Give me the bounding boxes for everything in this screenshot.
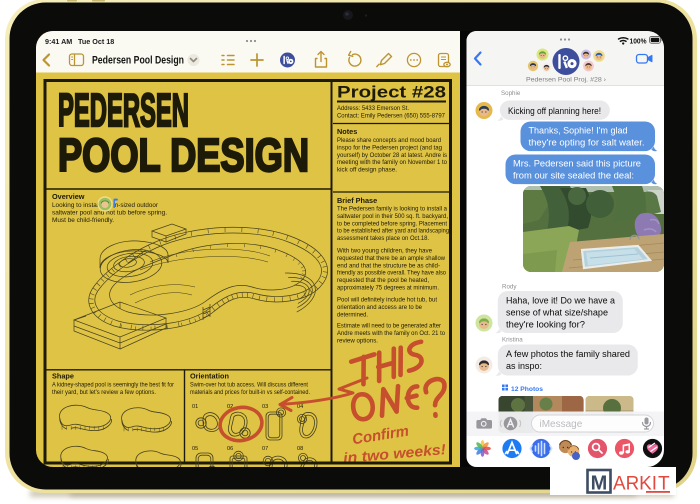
svg-text:their yard, but let's review a: their yard, but let's review a few optio… (52, 389, 156, 396)
svg-text:to be established after yard a: to be established after yard and landsca… (337, 228, 449, 235)
svg-text:requested that the pool be hea: requested that the pool be heated, (337, 277, 429, 284)
svg-text:08: 08 (297, 446, 303, 452)
svg-text:kick off design phase.: kick off design phase. (337, 167, 397, 174)
svg-text:9:41 AM: 9:41 AM (45, 37, 72, 46)
svg-text:inspo for the Pedersen project: inspo for the Pedersen project (and tag (337, 144, 442, 151)
svg-text:approximately 75 degrees at mi: approximately 75 degrees at minimum. (337, 285, 439, 292)
svg-text:Tue Oct 18: Tue Oct 18 (78, 37, 114, 46)
svg-text:Please share concepts and mood: Please share concepts and mood board (337, 137, 441, 144)
svg-text:Kristina: Kristina (502, 337, 523, 344)
svg-text:Notes: Notes (337, 127, 357, 136)
svg-text:M: M (591, 473, 608, 495)
svg-text:100%: 100% (630, 37, 647, 46)
svg-text:Haha, love it! Do we have a: Haha, love it! Do we have a (506, 296, 616, 307)
svg-text:Contact: Emily Pedersen (650): Contact: Emily Pedersen (650) 555-8797 (337, 113, 446, 120)
svg-text:they're opting for salt water.: they're opting for salt water. (529, 138, 645, 149)
svg-text:Project #28: Project #28 (337, 84, 446, 102)
svg-text:from our site sealed the deal:: from our site sealed the deal: (513, 171, 634, 182)
svg-text:Estimate will need to be gener: Estimate will need to be generated after (337, 323, 441, 330)
svg-text:Brief Phase: Brief Phase (337, 196, 377, 205)
svg-text:friendly as possible overall.: friendly as possible overall. They have … (337, 270, 447, 277)
svg-text:12 Photos: 12 Photos (511, 386, 543, 393)
svg-text:saltwater pool and hot tub bef: saltwater pool and hot tub before spring… (52, 210, 167, 217)
svg-text:A kidney-shaped pool is seemin: A kidney-shaped pool is seemingly the be… (52, 382, 174, 389)
svg-text:end and that the structure be: end and that the structure be as child- (337, 262, 440, 269)
svg-text:06: 06 (227, 446, 233, 452)
svg-text:The Pedersen family is looking: The Pedersen family is looking to instal… (337, 206, 448, 213)
svg-text:Thanks, Sophie! I'm glad: Thanks, Sophie! I'm glad (529, 126, 628, 137)
svg-text:Mrs. Pedersen said this pictur: Mrs. Pedersen said this picture (513, 159, 641, 170)
svg-text:Orientation: Orientation (190, 372, 229, 381)
svg-text:Pool will definitely include h: Pool will definitely include hot tub, bu… (337, 297, 437, 304)
svg-text:Sophie: Sophie (501, 90, 521, 97)
svg-text:With two young children, they: With two young children, they have (337, 248, 433, 255)
svg-text:01: 01 (192, 404, 198, 410)
svg-text:Pedersen Pool Design: Pedersen Pool Design (92, 55, 184, 67)
svg-text:determined.: determined. (337, 311, 368, 318)
svg-text:Overview: Overview (52, 192, 85, 201)
svg-text:sense of what size/shape: sense of what size/shape (506, 308, 608, 319)
svg-text:Address: 5433 Emerson St.: Address: 5433 Emerson St. (337, 105, 409, 112)
svg-text:03: 03 (262, 404, 268, 410)
svg-text:07: 07 (262, 446, 268, 452)
svg-text:saltwater pool in their 500 sq: saltwater pool in their 500 sq. ft. back… (337, 213, 448, 220)
svg-text:as inspo:: as inspo: (506, 361, 542, 372)
svg-text:requested that there be an amp: requested that there be an ample shallow (337, 255, 446, 262)
svg-text:Must be child-friendly.: Must be child-friendly. (52, 217, 114, 224)
svg-text:A few photos the family shared: A few photos the family shared (506, 349, 630, 360)
svg-text:review options.: review options. (337, 337, 378, 344)
svg-text:iMessage: iMessage (540, 419, 583, 430)
svg-text:meeting with the family on Nov: meeting with the family on November 1 to (337, 159, 448, 166)
svg-text:POOL DESIGN: POOL DESIGN (58, 129, 309, 181)
svg-text:Shape: Shape (52, 372, 74, 381)
svg-text:materials and prices for built: materials and prices for built-in vs sel… (190, 389, 310, 396)
svg-text:yourself) by October 28 at lat: yourself) by October 28 at latest. Andre… (337, 152, 447, 159)
svg-text:Rody: Rody (502, 284, 517, 291)
svg-text:m-sized outdoor: m-sized outdoor (113, 202, 158, 209)
svg-text:05: 05 (192, 446, 198, 452)
svg-text:to be completed before spring.: to be completed before spring. Placement (337, 220, 447, 227)
svg-text:orientation and access are to: orientation and access are to be (337, 304, 423, 311)
svg-text:Andre meets with the family on: Andre meets with the family on Oct. 21 t… (337, 330, 446, 337)
svg-text:Pedersen Pool Proj. #28 ›: Pedersen Pool Proj. #28 › (526, 77, 606, 84)
svg-text:they're looking for?: they're looking for? (506, 320, 585, 331)
svg-text:04: 04 (297, 404, 303, 410)
svg-text:Kicking off planning here!: Kicking off planning here! (508, 106, 601, 117)
svg-text:Swim-over hot tub access. Will: Swim-over hot tub access. Will discuss d… (190, 382, 308, 389)
svg-text:assessment takes place on Oct.: assessment takes place on Oct.18. (337, 235, 429, 242)
